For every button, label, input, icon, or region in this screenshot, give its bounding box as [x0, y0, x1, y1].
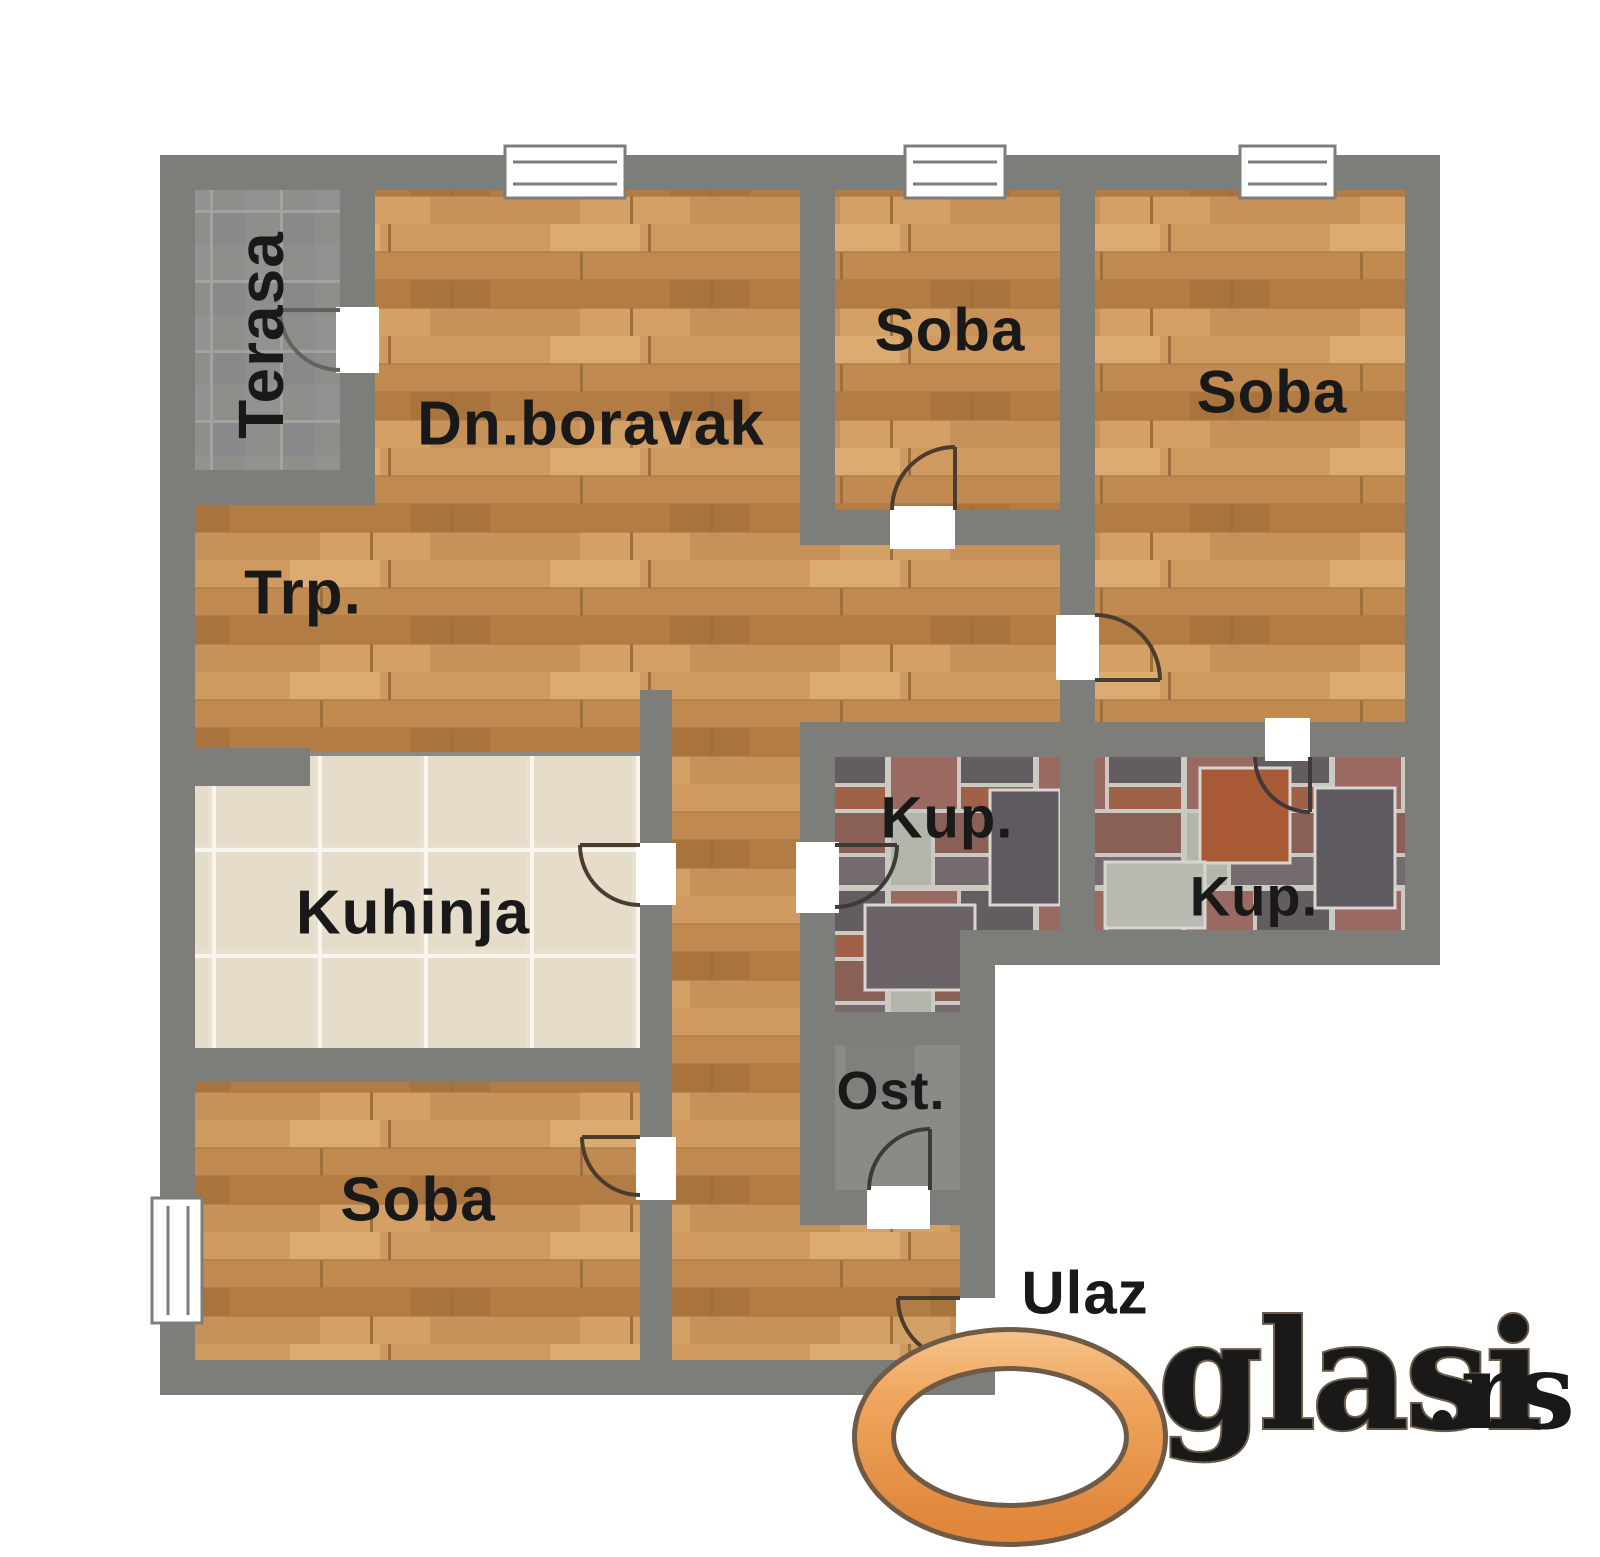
room-label-pantry: Ost.: [836, 1061, 945, 1121]
room-kitchen-floor-b: [195, 786, 310, 1048]
oglasi-logo-suffix: .rs: [1424, 1329, 1575, 1453]
door-gap-soba-right: [1056, 615, 1099, 680]
room-label-soba-top: Soba: [875, 297, 1026, 364]
bath-right-fixture-1: [1315, 788, 1395, 908]
wall-right: [1405, 155, 1440, 965]
wall-kitchen-right: [640, 690, 672, 1360]
bath-right-fixture-2: [1200, 768, 1290, 863]
door-gap-soba-top: [890, 506, 955, 549]
wall-bath-divider: [1060, 757, 1095, 930]
wall-corridor-east: [800, 722, 835, 1225]
room-label-bath-left: Kup.: [881, 786, 1014, 851]
oglasi-logo-o: [874, 1349, 1146, 1525]
door-gap-bath-left: [796, 842, 839, 913]
door-gap-bath-right: [1265, 718, 1310, 761]
room-label-living: Dn.boravak: [417, 390, 765, 459]
window-symbol-living: [505, 146, 625, 198]
door-gap-kitchen: [636, 843, 676, 905]
wall-pantry-top: [835, 1012, 960, 1045]
wall-step-horizontal: [960, 930, 1440, 965]
wall-terasa-bottom: [195, 470, 375, 505]
room-label-soba-bottom: Soba: [340, 1166, 496, 1235]
room-label-soba-right: Soba: [1197, 359, 1348, 426]
window-symbol-soba-top: [905, 146, 1005, 198]
kitchen-open-edge: [310, 752, 640, 756]
window-symbol-soba-right: [1240, 146, 1335, 198]
wall-kitchen-bottom: [195, 1048, 672, 1082]
wall-kitchen-top-stub: [195, 748, 310, 786]
room-label-kitchen: Kuhinja: [296, 879, 530, 948]
room-label-dining: Trp.: [244, 559, 362, 628]
door-gap-terasa: [336, 307, 379, 373]
window-symbol-soba-bottom: [152, 1198, 202, 1323]
room-label-bath-right: Kup.: [1190, 865, 1318, 928]
room-label-terasa: Terasa: [225, 231, 297, 439]
floor-plan: Terasa Dn.boravak Trp. Soba Soba Kuhinja…: [0, 0, 1600, 1557]
door-gap-soba-bottom: [636, 1137, 676, 1200]
wall-soba-top-left: [800, 190, 835, 545]
wall-bath-top: [835, 722, 1405, 757]
door-gap-pantry: [867, 1186, 930, 1229]
bath-left-fixture-2: [865, 905, 975, 990]
floor-plan-page: Terasa Dn.boravak Trp. Soba Soba Kuhinja…: [0, 0, 1600, 1557]
room-label-entrance: Ulaz: [1021, 1260, 1148, 1327]
